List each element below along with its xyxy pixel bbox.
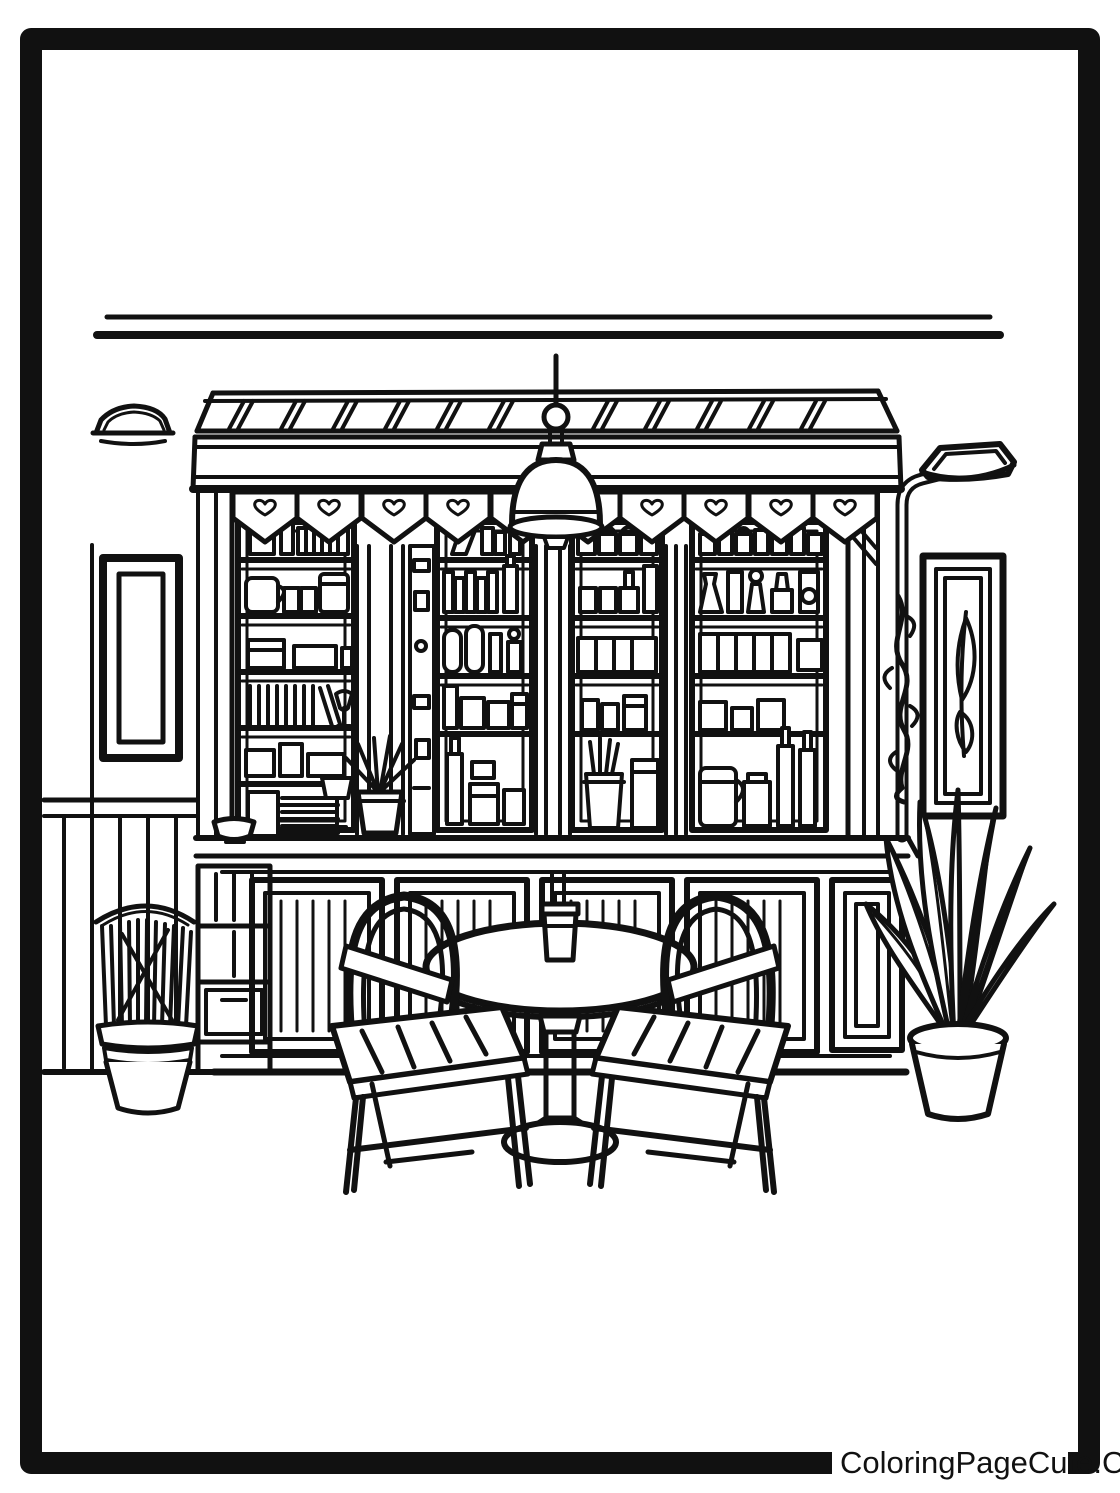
striped-pilaster-center [536,546,570,834]
hanging-vine [884,596,917,802]
ceiling-lines [97,317,1000,335]
striped-pilaster-2 [666,546,686,834]
coloring-page-artwork: ColoringPageCute.Com [0,0,1120,1493]
counter [196,838,918,856]
cup-on-table [542,904,578,960]
shelf-section-b [437,522,532,830]
watermark-text: ColoringPageCute.Com [840,1445,1120,1480]
coloring-page: ColoringPageCute.Com [0,0,1120,1493]
leaf-art-icon [957,612,975,756]
right-picture-frame [923,556,1003,816]
plant-leaves [866,790,1054,1040]
left-wall-sconce-icon [93,406,173,444]
bowl-icon [214,819,254,843]
tall-basket-planter [96,906,198,1113]
pendant-lamp-icon [510,356,602,548]
cubby-shelf [198,866,270,1072]
narrow-item-column [410,546,434,834]
shelf-section-d [692,522,826,830]
shelf-section-c [572,522,662,830]
awning-stripes [229,401,825,429]
left-picture-frame [103,558,179,758]
